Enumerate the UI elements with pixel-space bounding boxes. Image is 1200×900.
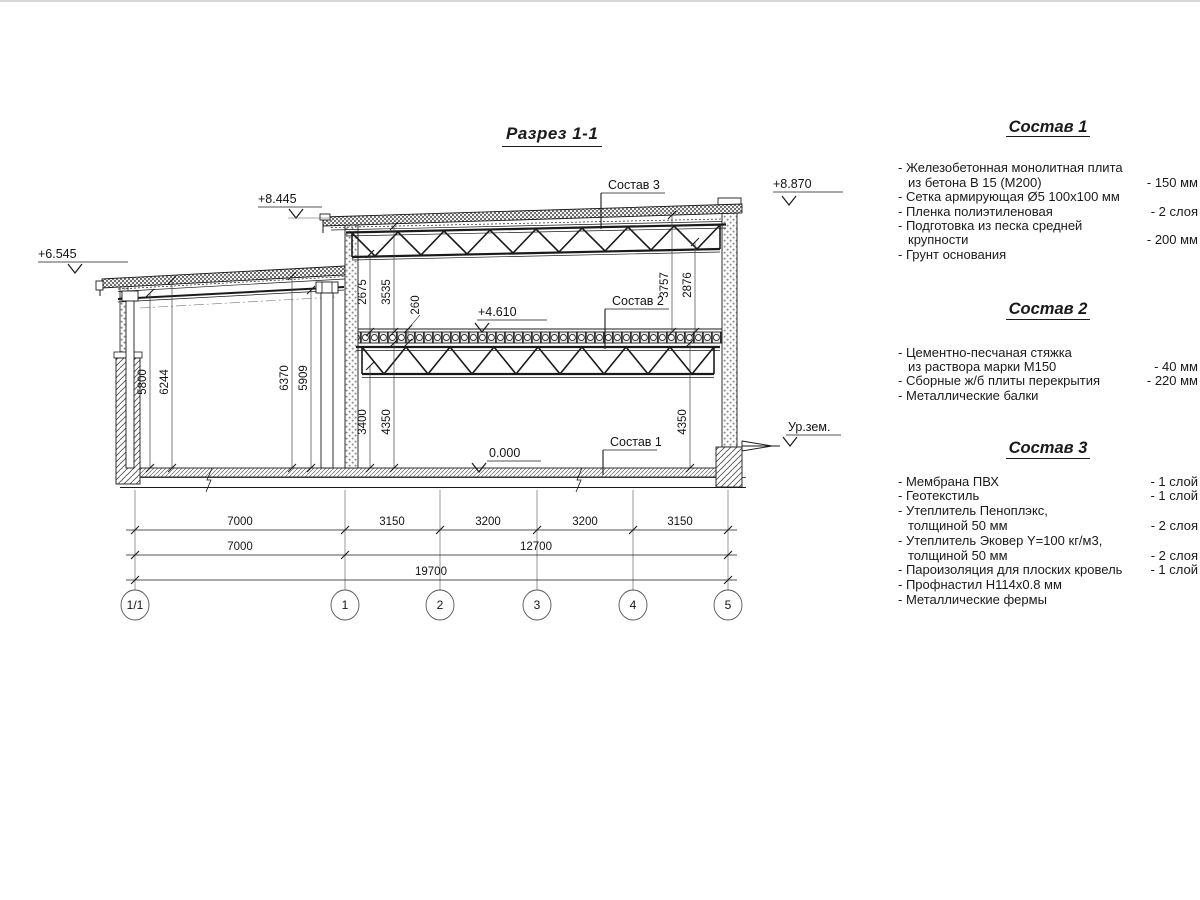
composition-notes-panel: Состав 1 - Железобетонная монолитная пли…: [898, 120, 1198, 608]
note-line: - Железобетонная монолитная плита: [898, 161, 1123, 175]
section-view: 5800 6244 6370 5909 2675 3535 260 3757 2…: [0, 2, 900, 662]
callout-sostav-2: Состав 2: [612, 294, 664, 308]
dim-3150-b: 3150: [667, 516, 693, 528]
axis-5: 5: [725, 598, 732, 612]
note-section-sostav-2: Состав 2 - Цементно-песчаная стяжка из р…: [898, 302, 1198, 403]
note-line: - Металлические балки: [898, 389, 1038, 403]
note-line: - Профнастил Н114х0.8 мм: [898, 578, 1062, 593]
dim-6370: 6370: [279, 365, 291, 391]
main-building-structure: [320, 198, 780, 487]
elevation-6545-label: +6.545: [38, 247, 77, 261]
note-line: - Мембрана ПВХ: [898, 475, 999, 490]
dim-2675: 2675: [357, 279, 369, 305]
note-value: - 220 мм: [1147, 374, 1198, 388]
dim-3535: 3535: [381, 279, 393, 305]
ground-floor-slab: [120, 468, 746, 492]
note-line: - Сетка армирующая Ø5 100х100 мм: [898, 190, 1120, 204]
axis-4: 4: [630, 598, 637, 612]
note-value: - 1 слой: [1150, 489, 1198, 504]
note-line: - Пароизоляция для плоских кровель: [898, 563, 1122, 578]
elevation-0000-label: 0.000: [489, 446, 520, 460]
note-line: крупности: [898, 233, 968, 247]
dim-6244: 6244: [159, 369, 171, 395]
note-value: - 2 слоя: [1151, 519, 1198, 534]
note-line: толщиной 50 мм: [898, 549, 1008, 564]
dim-3200-b: 3200: [572, 516, 598, 528]
note-value: - 1 слой: [1150, 475, 1198, 490]
note-heading: Состав 3: [1006, 441, 1091, 458]
axis-2: 2: [437, 598, 444, 612]
note-heading: Состав 1: [1006, 120, 1091, 137]
section-drawing-sheet: { "title": "Разрез 1-1", "section": { "c…: [0, 0, 1200, 900]
dim-7000-a: 7000: [227, 516, 253, 528]
dim-4350-right: 4350: [677, 409, 689, 435]
axis-3: 3: [534, 598, 541, 612]
note-line: из раствора марки М150: [898, 360, 1056, 374]
dim-3200-a: 3200: [475, 516, 501, 528]
floor-truss: [356, 347, 720, 378]
note-line: - Грунт основания: [898, 248, 1006, 262]
dim-3150-a: 3150: [379, 516, 405, 528]
axis-1: 1: [342, 598, 349, 612]
note-value: - 2 слоя: [1151, 549, 1198, 564]
ground-level-label: Ур.зем.: [788, 420, 830, 434]
note-line: - Пленка полиэтиленовая: [898, 205, 1053, 219]
note-line: - Подготовка из песка средней: [898, 219, 1082, 233]
note-section-sostav-1: Состав 1 - Железобетонная монолитная пли…: [898, 120, 1198, 262]
elevation-8445-label: +8.445: [258, 192, 297, 206]
dim-2876: 2876: [682, 272, 694, 298]
note-value: - 2 слоя: [1151, 205, 1198, 219]
note-heading: Состав 2: [1006, 302, 1091, 319]
callout-sostav-3: Состав 3: [608, 178, 660, 192]
note-line: - Цементно-песчаная стяжка: [898, 346, 1072, 360]
dim-4350-left: 4350: [381, 409, 393, 435]
roof-truss: [346, 225, 726, 261]
elevation-4610-label: +4.610: [478, 305, 517, 319]
callout-sostav-1: Состав 1: [610, 435, 662, 449]
note-line: толщиной 50 мм: [898, 519, 1008, 534]
note-value: - 1 слой: [1150, 563, 1198, 578]
note-line: - Утеплитель Пеноплэкс,: [898, 504, 1048, 519]
note-section-sostav-3: Состав 3 - Мембрана ПВХ- 1 слой - Геотек…: [898, 441, 1198, 608]
note-line: - Геотекстиль: [898, 489, 979, 504]
axis-bubbles: 1/1 1 2 3 4 5: [121, 590, 742, 620]
dim-7000-b: 7000: [227, 541, 253, 553]
axis-1-1: 1/1: [127, 598, 144, 612]
dim-5909: 5909: [298, 365, 310, 391]
note-line: - Металлические фермы: [898, 593, 1047, 608]
note-value: - 150 мм: [1147, 176, 1198, 190]
dim-5800: 5800: [137, 369, 149, 395]
dim-3400: 3400: [357, 409, 369, 435]
note-value: - 200 мм: [1147, 233, 1198, 247]
note-line: из бетона В 15 (М200): [898, 176, 1042, 190]
elevation-8870-label: +8.870: [773, 177, 812, 191]
note-value: - 40 мм: [1154, 360, 1198, 374]
horizontal-dimension-labels: 7000 3150 3200 3200 3150 7000 12700 1970…: [227, 516, 693, 578]
dim-12700: 12700: [520, 541, 552, 553]
dim-260: 260: [410, 295, 422, 314]
note-line: - Утеплитель Эковер Y=100 кг/м3,: [898, 534, 1102, 549]
note-line: - Сборные ж/б плиты перекрытия: [898, 374, 1100, 388]
dim-19700: 19700: [415, 566, 447, 578]
